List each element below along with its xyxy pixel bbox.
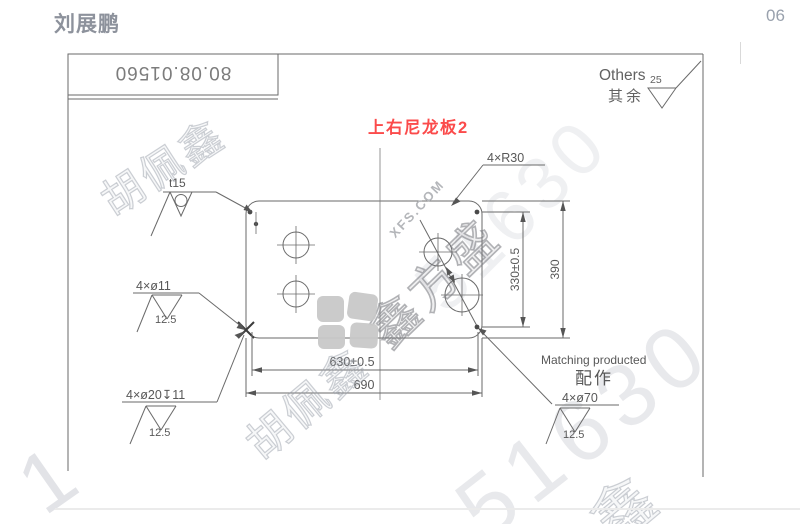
hole-right-top bbox=[419, 233, 457, 271]
match-note-zh: 配作 bbox=[575, 369, 613, 388]
counterbore-roughness: 12.5 bbox=[149, 427, 170, 439]
corner-radius-leader bbox=[451, 165, 545, 206]
corner-markers bbox=[248, 210, 480, 330]
part-title: 上右尼龙板2 bbox=[368, 117, 469, 137]
thickness-symbol bbox=[151, 192, 252, 236]
sheet-frame bbox=[68, 54, 703, 477]
match-hole-label: 4×ø70 bbox=[562, 391, 598, 405]
others-label-zh: 其余 bbox=[608, 87, 644, 105]
others-roughness-value: 25 bbox=[650, 74, 662, 86]
match-note-en: Matching producted bbox=[541, 353, 646, 367]
through-hole-label: 4×ø11 bbox=[136, 279, 171, 293]
diagonal-construction-line bbox=[420, 220, 477, 326]
thickness-note: t15 bbox=[169, 176, 186, 190]
page-separator bbox=[55, 508, 800, 510]
title-block-number: 80.08.01560 bbox=[115, 62, 232, 83]
dim-height-outer: 390 bbox=[548, 259, 562, 279]
dim-630 bbox=[252, 332, 478, 376]
header-code-partial: 06 bbox=[766, 6, 785, 26]
hole-left-bottom bbox=[277, 275, 315, 313]
hole-right-bottom bbox=[441, 274, 483, 316]
dim-width-outer: 690 bbox=[354, 378, 375, 392]
corner-radius-label: 4×R30 bbox=[487, 151, 524, 165]
page: 刘展鹏 06 51630 51630 1 鑫 胡佩鑫 bbox=[0, 0, 800, 524]
dim-330 bbox=[482, 212, 530, 327]
counterbore-label: 4×ø20↧11 bbox=[126, 388, 185, 402]
through-hole-callout bbox=[133, 293, 245, 332]
others-label-en: Others bbox=[599, 67, 646, 84]
dim-width-inner: 630±0.5 bbox=[329, 355, 374, 369]
match-hole-roughness: 12.5 bbox=[563, 429, 584, 441]
uploader-name: 刘展鹏 bbox=[54, 8, 120, 38]
hole-left-top bbox=[277, 226, 315, 264]
dim-height-inner: 330±0.5 bbox=[508, 248, 522, 292]
engineering-drawing: 80.08.01560 上右尼龙板2 Others 其余 25 t15 4×R3… bbox=[0, 40, 800, 510]
through-hole-roughness: 12.5 bbox=[155, 314, 176, 326]
